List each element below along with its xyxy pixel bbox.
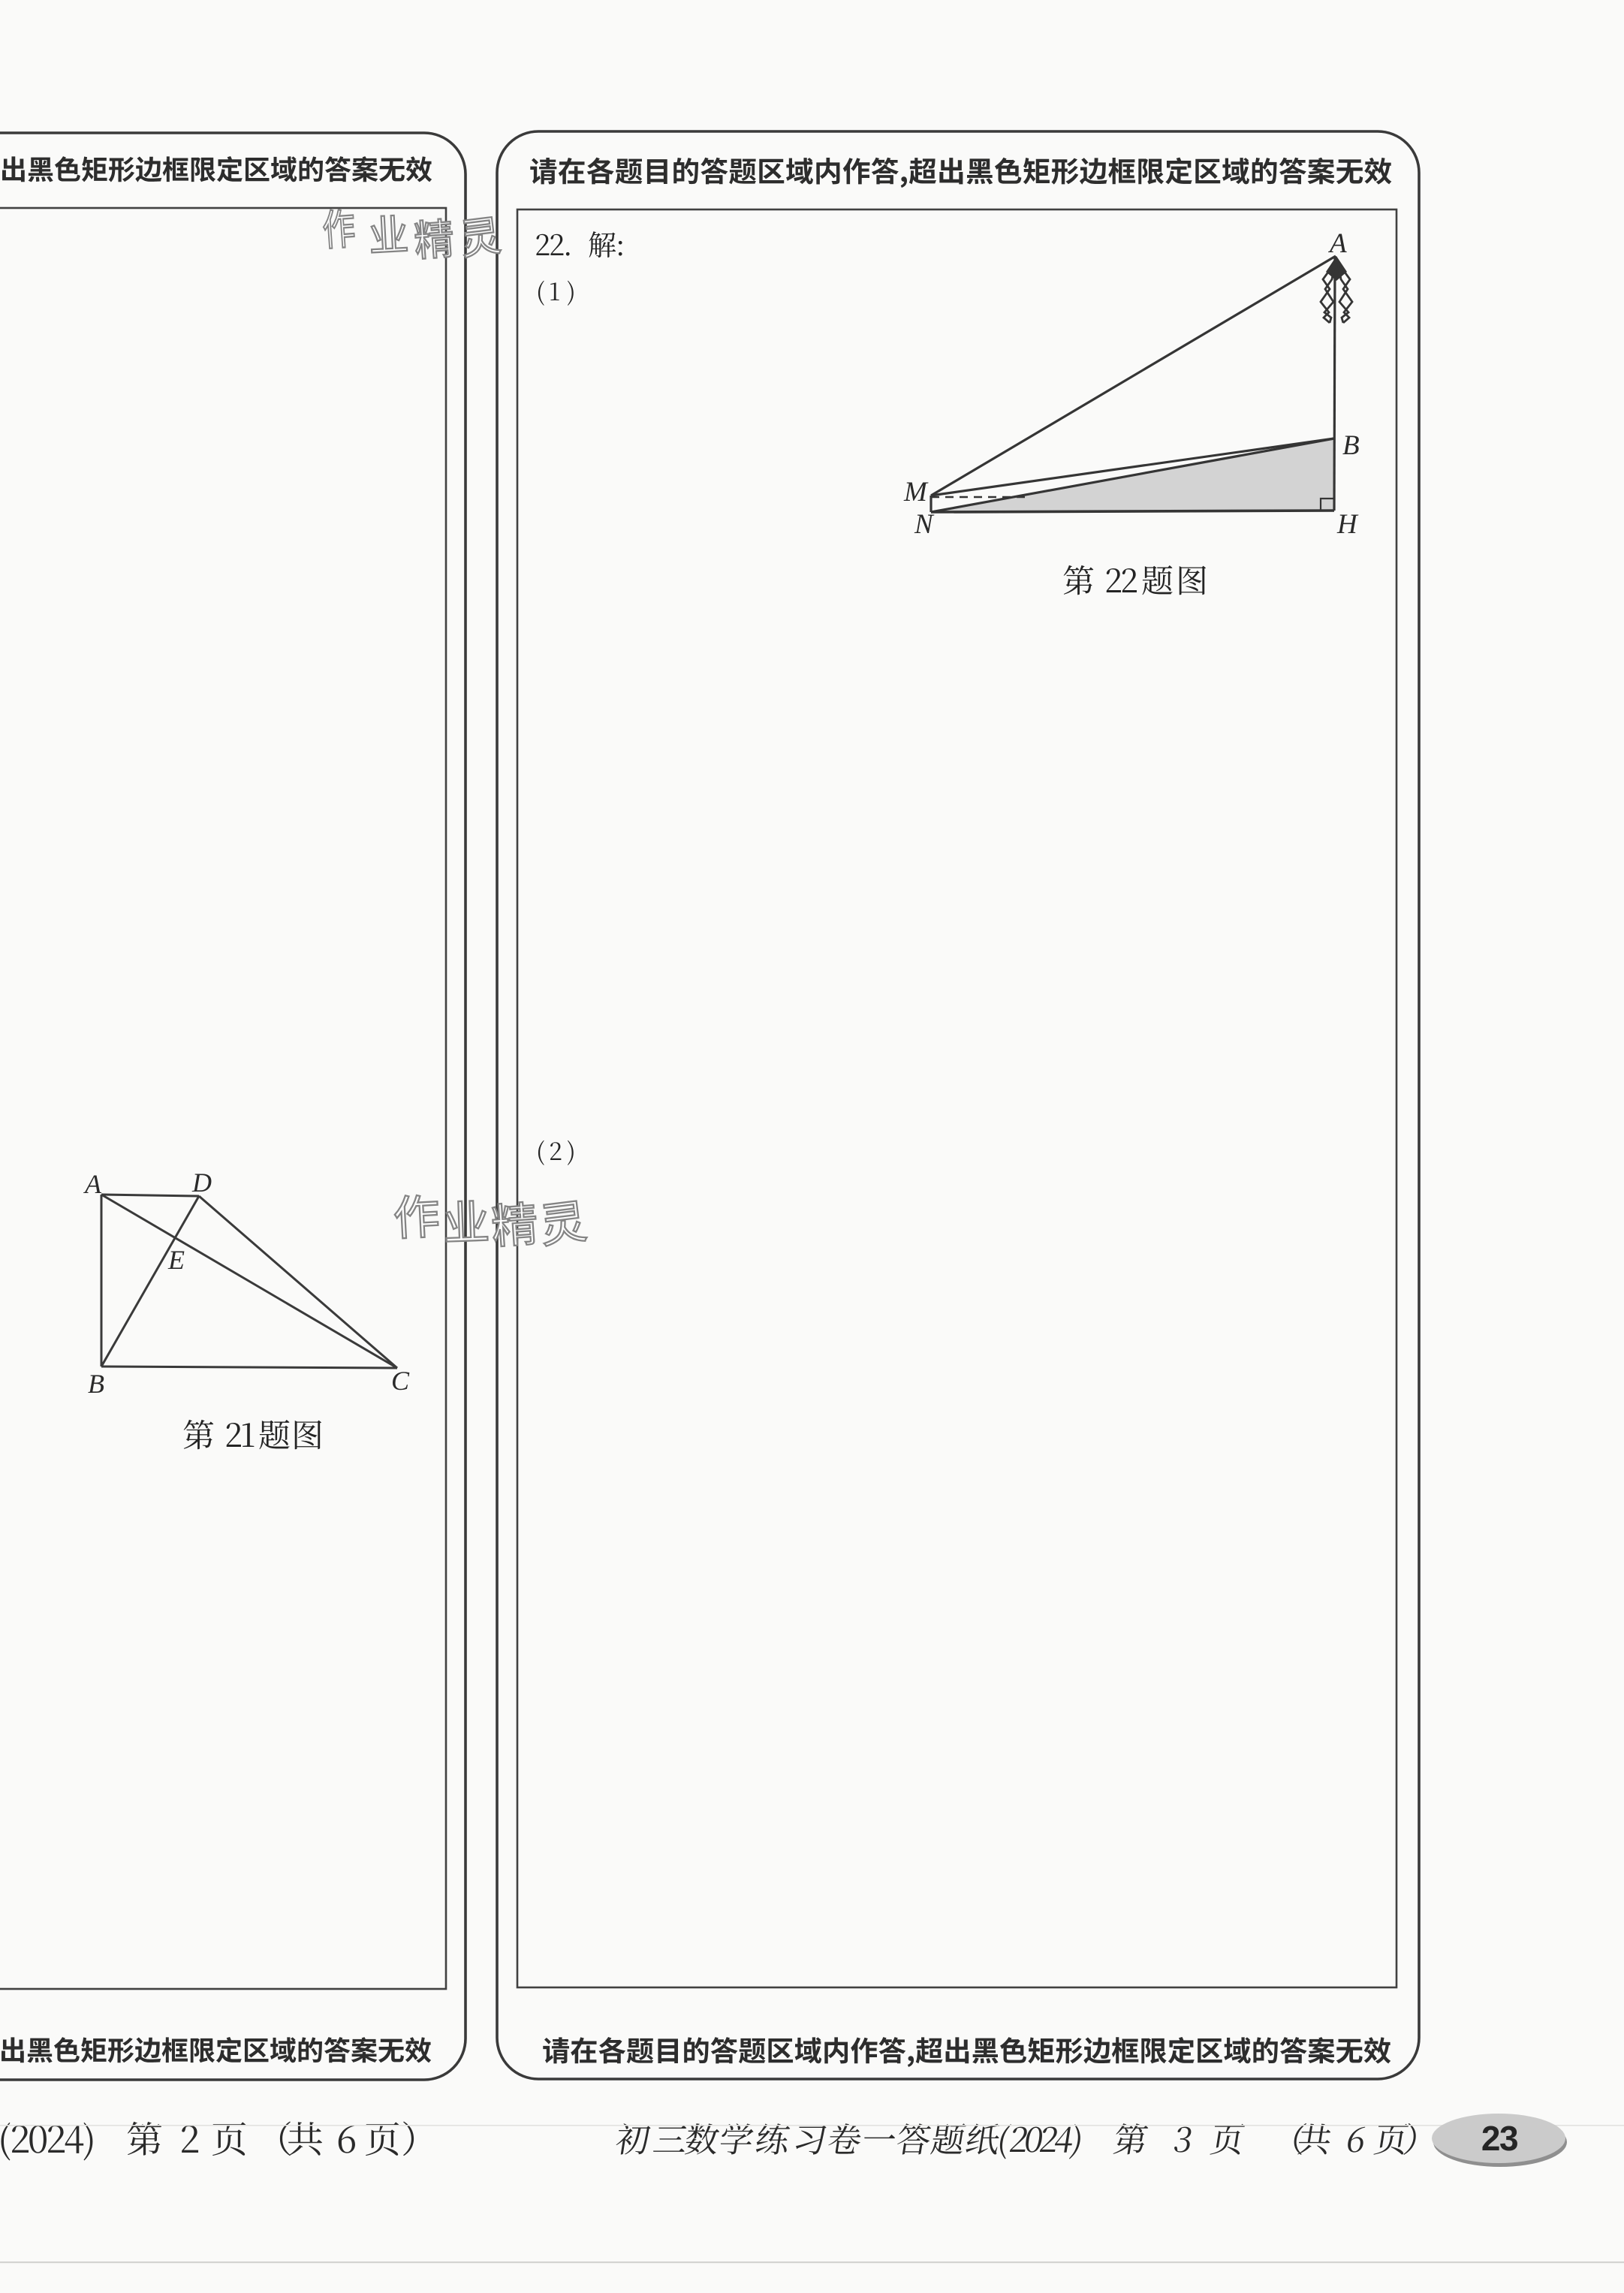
- svg-text:E: E: [167, 1245, 185, 1275]
- svg-text:H: H: [1336, 509, 1359, 540]
- svg-text:B: B: [88, 1369, 104, 1399]
- svg-text:N: N: [914, 509, 935, 540]
- svg-text:A: A: [1327, 228, 1347, 259]
- svg-text:M: M: [903, 477, 929, 508]
- svg-text:A: A: [83, 1169, 102, 1199]
- svg-text:23: 23: [1481, 2119, 1517, 2158]
- svg-text:C: C: [391, 1366, 410, 1396]
- svg-text:B: B: [1342, 430, 1360, 461]
- svg-text:D: D: [191, 1168, 212, 1198]
